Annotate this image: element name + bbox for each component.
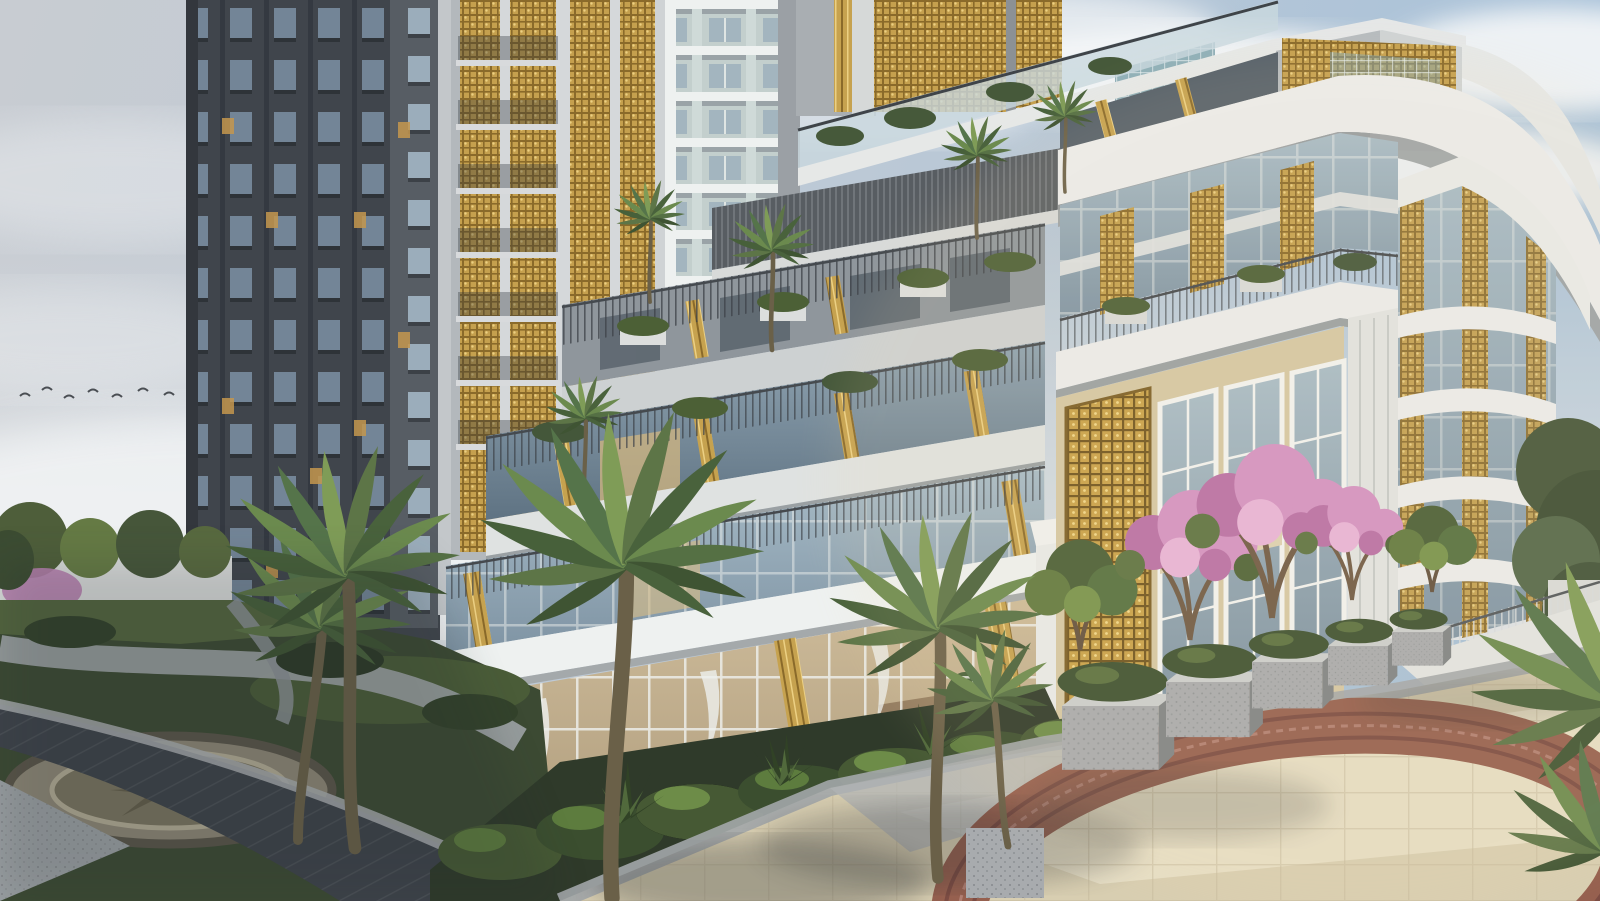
- architectural-rendering: [0, 0, 1600, 901]
- white-pilaster: [852, 0, 874, 118]
- sunlit-pilaster: [438, 0, 451, 615]
- gold-slat: [834, 0, 852, 112]
